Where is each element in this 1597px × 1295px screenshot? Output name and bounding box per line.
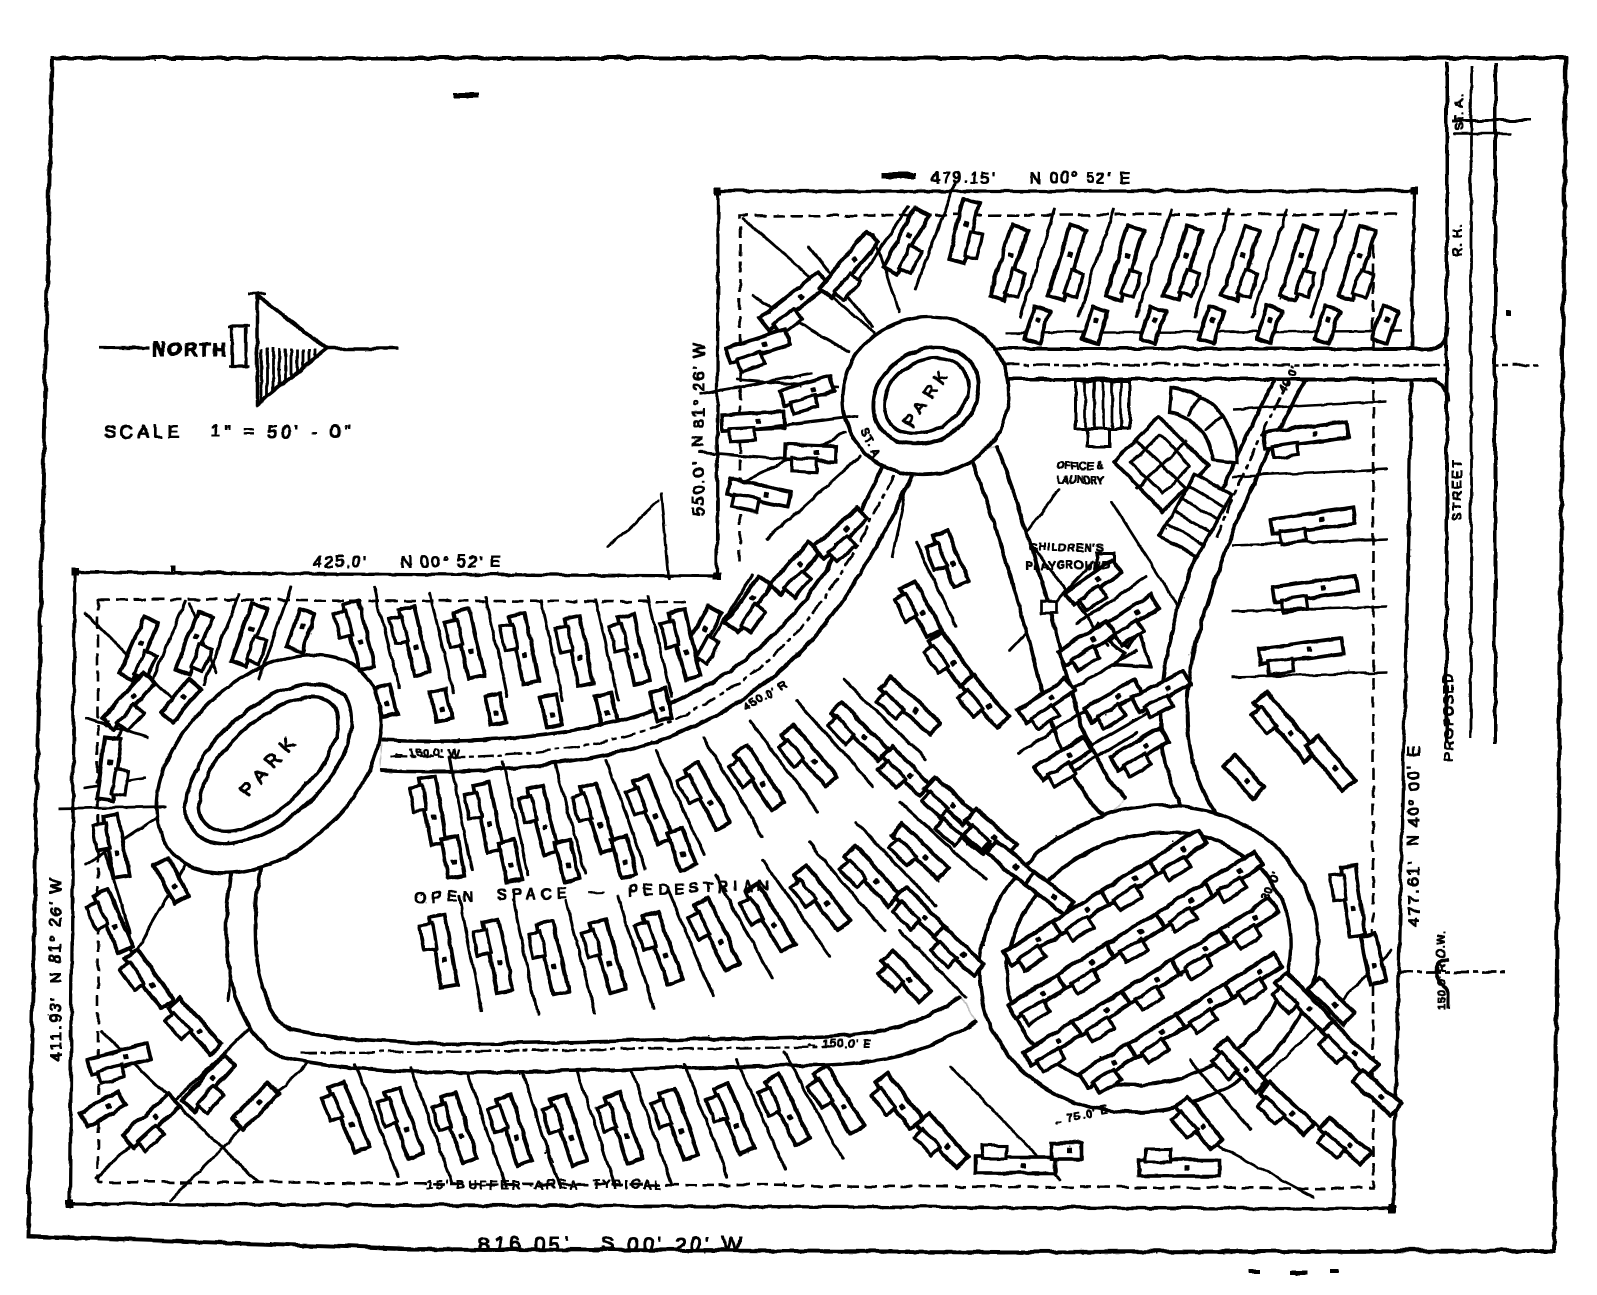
svg-text:LAUNDRY: LAUNDRY	[1056, 474, 1104, 485]
svg-text:550.0' N 81° 26' W: 550.0' N 81° 26' W	[690, 340, 707, 515]
svg-text:R. H.: R. H.	[1449, 223, 1463, 255]
svg-text:15' BUFFER AREA TYPICAL: 15' BUFFER AREA TYPICAL	[425, 1177, 663, 1191]
svg-text:NORTH: NORTH	[151, 339, 226, 360]
svg-text:477.61' N 40° 00' E: 477.61' N 40° 00' E	[1405, 744, 1422, 926]
svg-text:ST. A.: ST. A.	[1451, 93, 1465, 130]
svg-text:PROPOSED: PROPOSED	[1440, 670, 1455, 760]
svg-text:OFFICE &: OFFICE &	[1056, 460, 1102, 471]
svg-text:150.0' R.O.W.: 150.0' R.O.W.	[1435, 929, 1447, 1010]
svg-text:479.15' N 00° 52' E: 479.15' N 00° 52' E	[930, 169, 1131, 186]
svg-text:← 150.0' W: ← 150.0' W	[392, 747, 459, 759]
svg-text:411.93' N 81° 26' W: 411.93' N 81° 26' W	[47, 875, 64, 1060]
svg-text:STREET: STREET	[1448, 457, 1463, 520]
svg-text:425.0' N 00° 52' E: 425.0' N 00° 52' E	[312, 553, 502, 570]
svg-text:CHILDREN'S: CHILDREN'S	[1028, 541, 1104, 553]
svg-text:← 150.0' E: ← 150.0' E	[806, 1037, 870, 1049]
svg-text:SCALE 1" = 50' - 0": SCALE 1" = 50' - 0"	[103, 421, 354, 441]
svg-text:816.05' S 00' 20' W: 816.05' S 00' 20' W	[478, 1233, 745, 1255]
svg-text:PLAYGROUND: PLAYGROUND	[1024, 559, 1110, 571]
